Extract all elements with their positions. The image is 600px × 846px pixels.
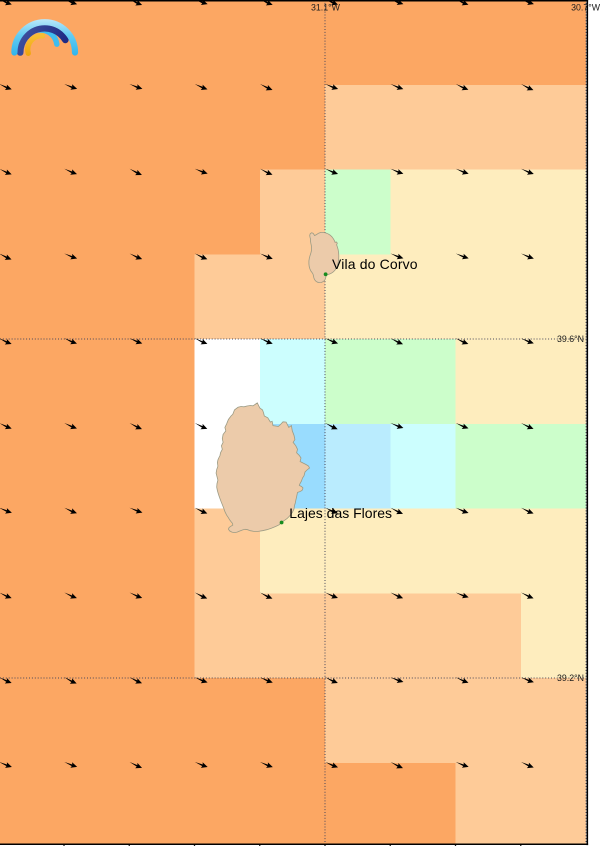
svg-text:Lajes das Flores: Lajes das Flores	[289, 505, 392, 521]
svg-text:30.7°W: 30.7°W	[571, 2, 600, 12]
svg-text:39.2°N: 39.2°N	[557, 673, 584, 683]
svg-text:Vila do Corvo: Vila do Corvo	[332, 256, 418, 272]
svg-text:39.6°N: 39.6°N	[557, 334, 584, 344]
svg-text:31.1°W: 31.1°W	[311, 2, 341, 12]
